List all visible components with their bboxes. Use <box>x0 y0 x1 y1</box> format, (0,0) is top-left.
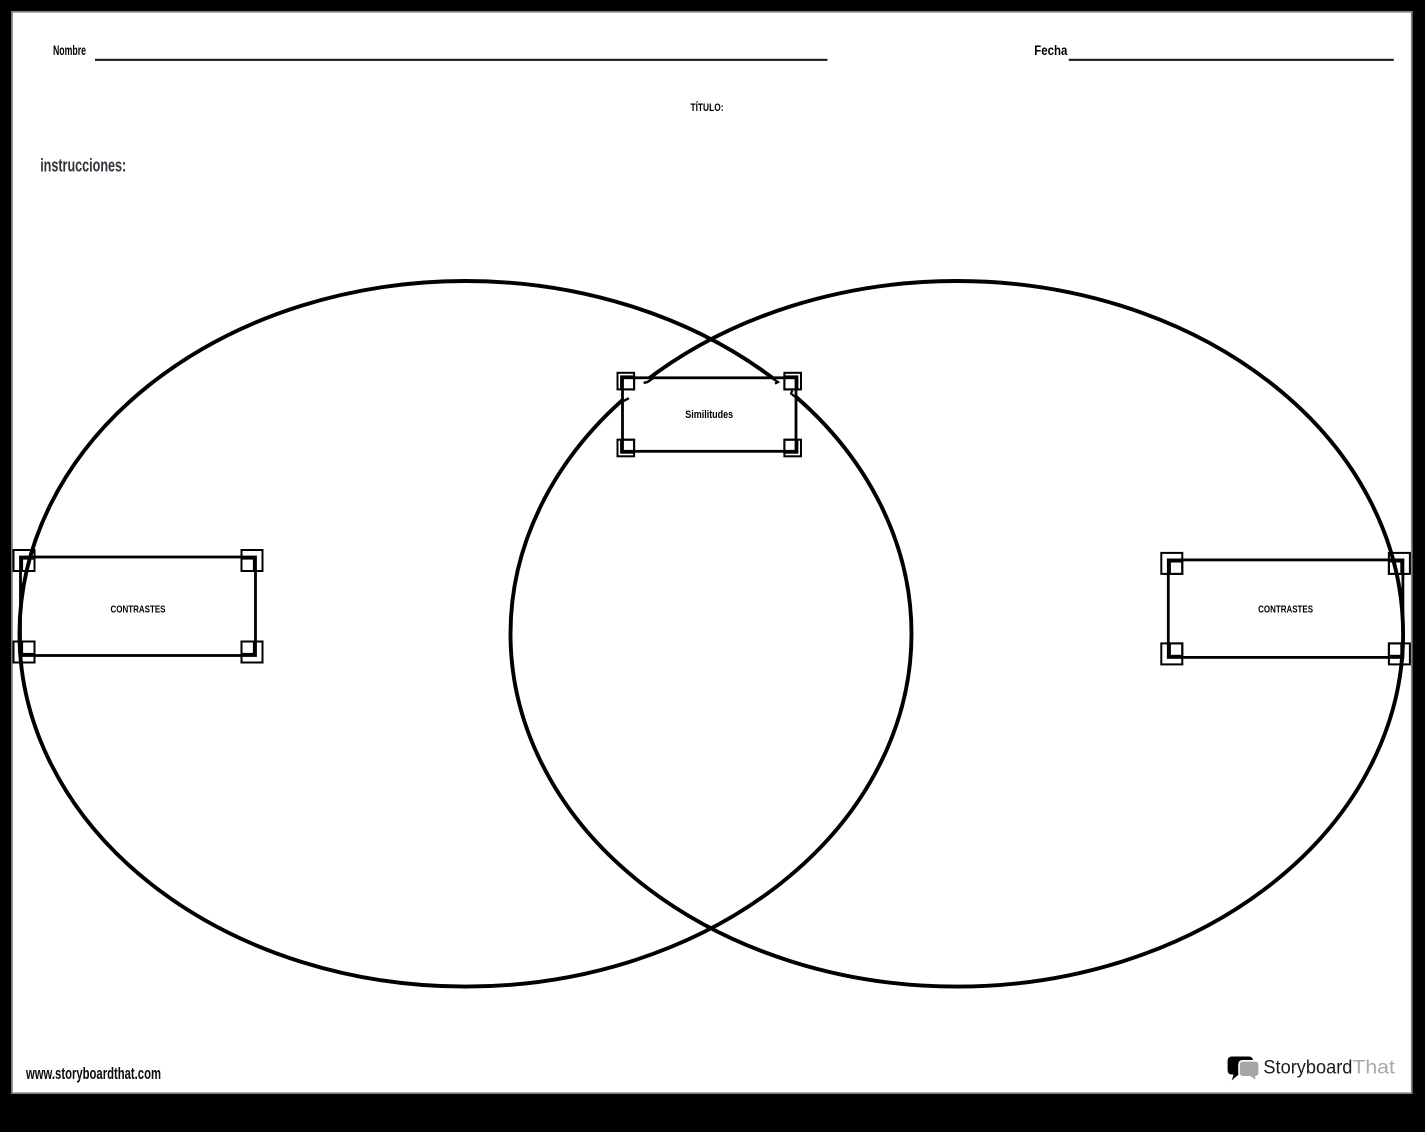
svg-text:Similitudes: Similitudes <box>685 409 733 421</box>
svg-text:TÍTULO:: TÍTULO: <box>691 101 724 114</box>
svg-text:Fecha: Fecha <box>1034 42 1067 58</box>
svg-text:instrucciones:: instrucciones: <box>40 155 126 175</box>
svg-text:www.storyboardthat.com: www.storyboardthat.com <box>25 1064 161 1083</box>
svg-text:Nombre: Nombre <box>53 42 86 58</box>
svg-text:CONTRASTES: CONTRASTES <box>1258 604 1313 615</box>
svg-text:Storyboard: Storyboard <box>1263 1058 1352 1079</box>
svg-text:CONTRASTES: CONTRASTES <box>111 604 166 615</box>
svg-text:That: That <box>1352 1058 1395 1079</box>
